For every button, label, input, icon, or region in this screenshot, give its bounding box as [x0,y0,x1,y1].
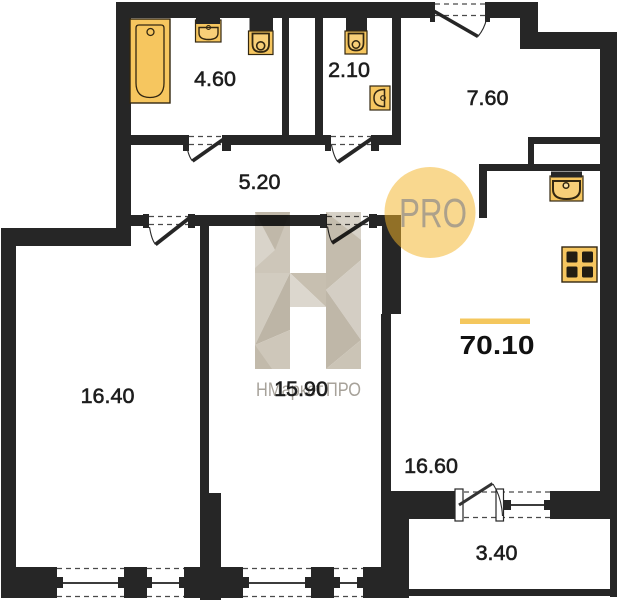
svg-text:7.60: 7.60 [467,86,509,110]
svg-text:4.60: 4.60 [194,67,236,91]
svg-text:2.10: 2.10 [328,58,370,82]
svg-text:5.20: 5.20 [239,170,281,194]
svg-text:PRO: PRO [399,190,467,236]
svg-text:70.10: 70.10 [460,330,535,360]
svg-text:3.40: 3.40 [476,541,518,565]
svg-text:16.60: 16.60 [404,454,458,478]
svg-text:15.90: 15.90 [274,377,328,401]
svg-text:16.40: 16.40 [81,384,135,408]
